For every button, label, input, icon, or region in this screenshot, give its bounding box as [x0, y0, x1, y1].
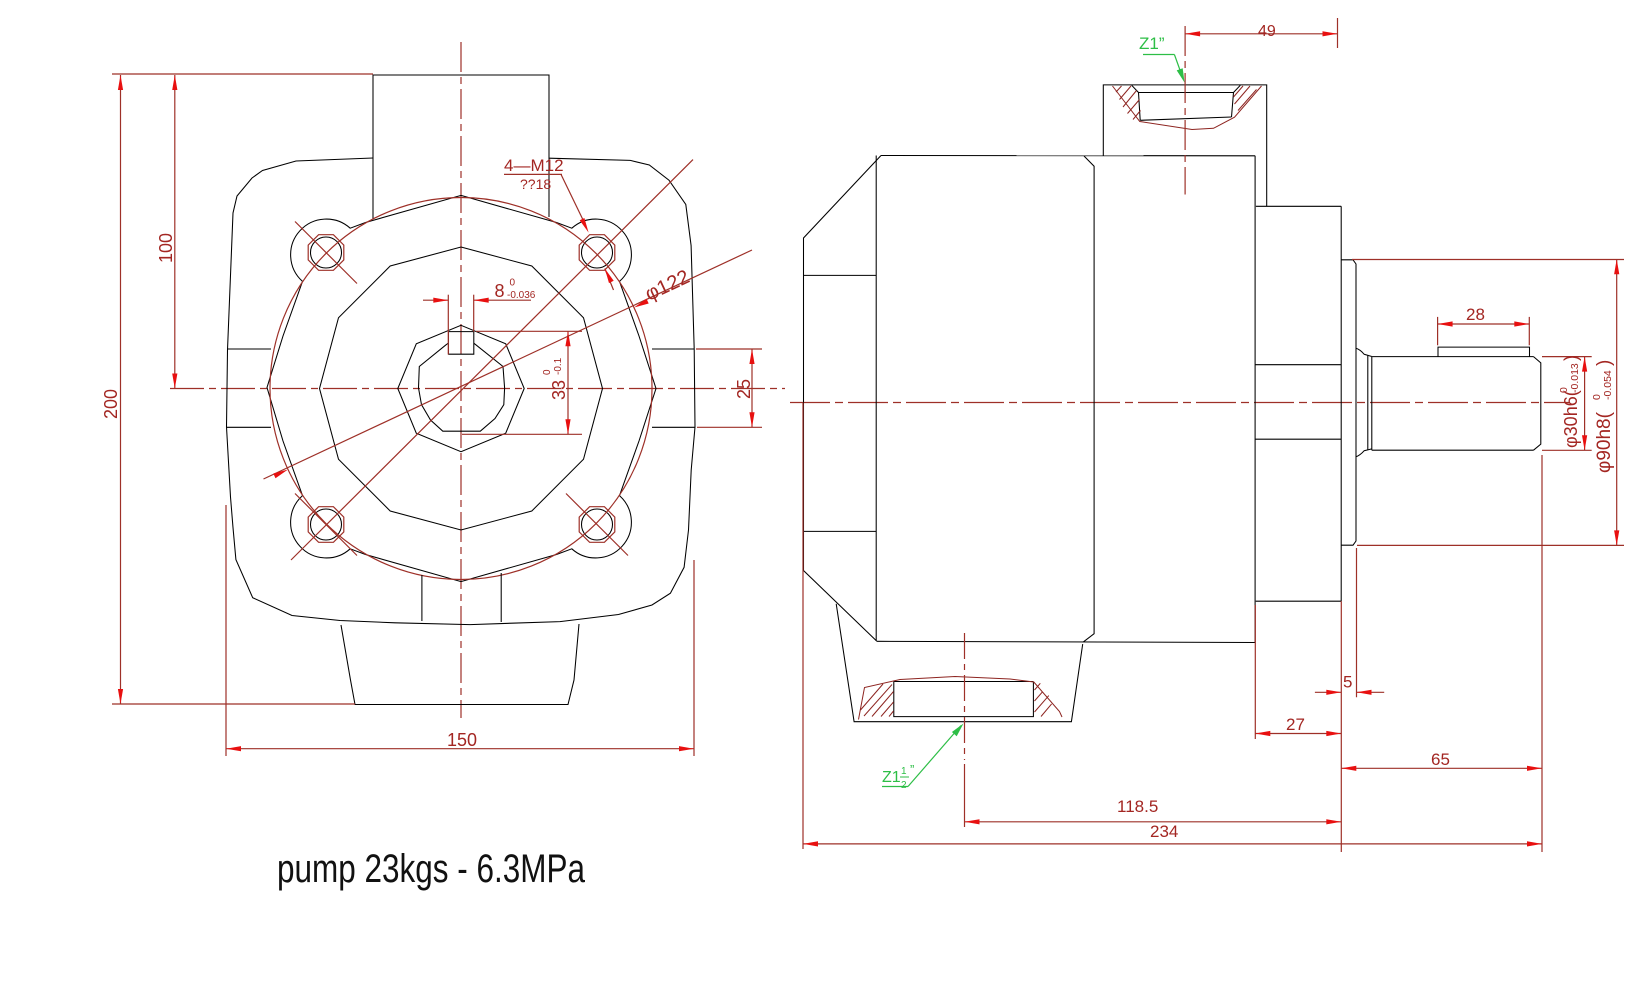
svg-text:pump 23kgs - 6.3MPa: pump 23kgs - 6.3MPa — [277, 847, 586, 891]
svg-text:118.5: 118.5 — [1117, 797, 1158, 816]
svg-text:5: 5 — [1343, 673, 1352, 692]
svg-text:4—M12: 4—M12 — [504, 156, 564, 175]
svg-text:100: 100 — [156, 233, 176, 263]
svg-text:φ90h8(: φ90h8( — [1594, 411, 1615, 473]
svg-text:”: ” — [910, 762, 914, 777]
svg-text:2: 2 — [901, 780, 907, 791]
svg-text:8: 8 — [495, 281, 505, 301]
svg-text:65: 65 — [1431, 750, 1450, 769]
svg-text:φ30h6(: φ30h6( — [1561, 390, 1581, 448]
svg-text:??18: ??18 — [520, 176, 551, 192]
svg-text:33: 33 — [549, 380, 569, 400]
svg-text:150: 150 — [447, 730, 477, 750]
svg-text:Z1: Z1 — [882, 769, 901, 786]
svg-text:49: 49 — [1258, 23, 1276, 40]
svg-text:-0.036: -0.036 — [507, 290, 536, 301]
svg-text:Z1”: Z1” — [1139, 34, 1165, 53]
svg-text:28: 28 — [1466, 305, 1485, 324]
svg-text:1: 1 — [901, 766, 907, 777]
svg-text:234: 234 — [1150, 822, 1178, 841]
svg-text:200: 200 — [101, 389, 121, 419]
svg-text:-0.054: -0.054 — [1602, 370, 1614, 400]
svg-text:27: 27 — [1286, 715, 1305, 734]
svg-text:-0.1: -0.1 — [553, 357, 564, 375]
svg-text:0: 0 — [542, 369, 553, 375]
svg-text:): ) — [1594, 360, 1615, 366]
svg-text:25: 25 — [734, 379, 754, 399]
svg-text:-0.013: -0.013 — [1569, 363, 1581, 393]
svg-text:0: 0 — [510, 278, 516, 289]
svg-text:): ) — [1561, 355, 1581, 361]
